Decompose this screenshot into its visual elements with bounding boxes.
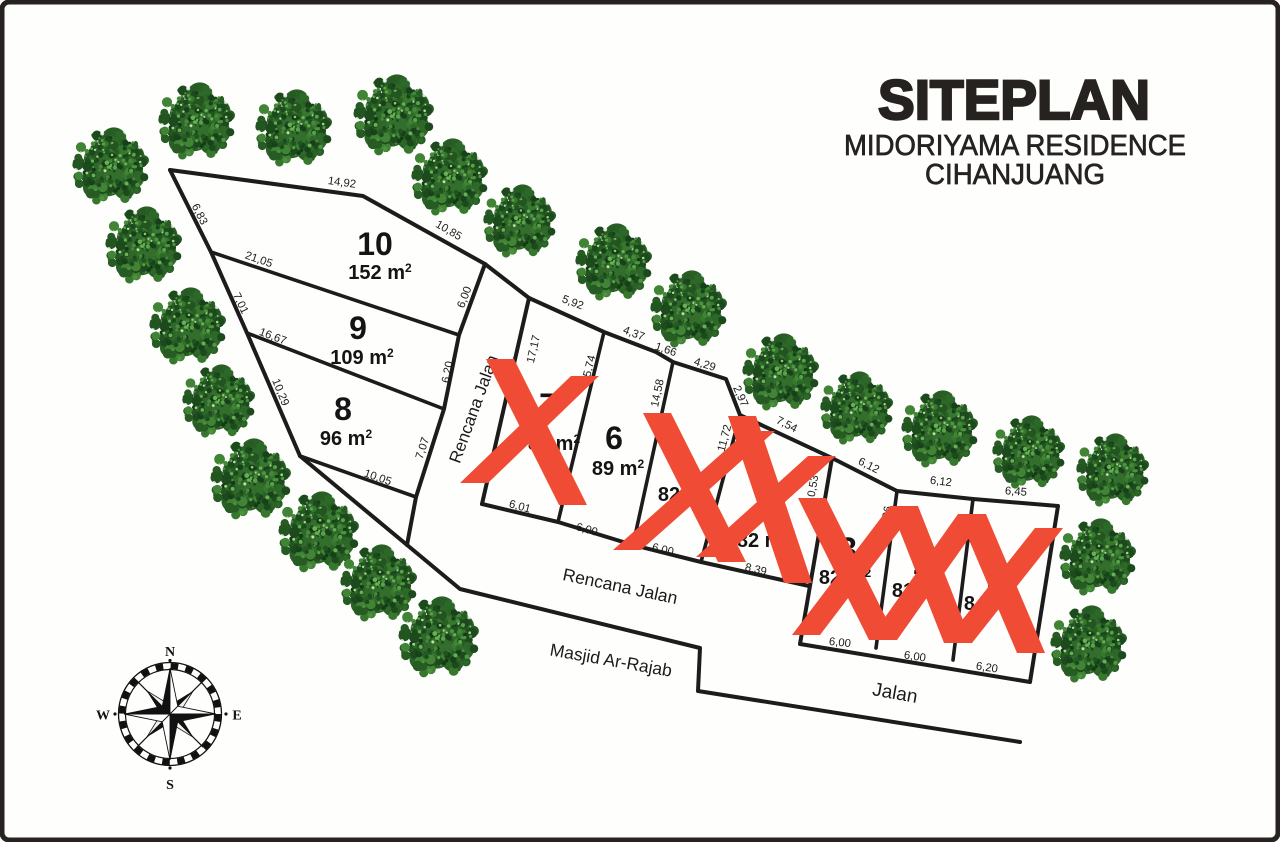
svg-text:6: 6 — [605, 420, 623, 456]
svg-text:SITEPLAN: SITEPLAN — [878, 68, 1150, 131]
svg-text:CIHANJUANG: CIHANJUANG — [925, 159, 1105, 191]
svg-text:109 m2: 109 m2 — [330, 346, 394, 369]
svg-text:8: 8 — [334, 391, 352, 427]
svg-text:S: S — [166, 778, 174, 793]
svg-text:E: E — [232, 709, 241, 724]
svg-text:10: 10 — [357, 226, 393, 262]
svg-text:9: 9 — [349, 310, 367, 346]
svg-text:6,00: 6,00 — [828, 636, 851, 650]
svg-text:89 m2: 89 m2 — [592, 457, 645, 480]
svg-text:W: W — [96, 709, 110, 724]
svg-text:96 m2: 96 m2 — [320, 427, 373, 450]
svg-text:N: N — [165, 645, 175, 660]
svg-text:MIDORIYAMA RESIDENCE: MIDORIYAMA RESIDENCE — [844, 130, 1186, 162]
svg-text:152 m2: 152 m2 — [348, 261, 412, 284]
